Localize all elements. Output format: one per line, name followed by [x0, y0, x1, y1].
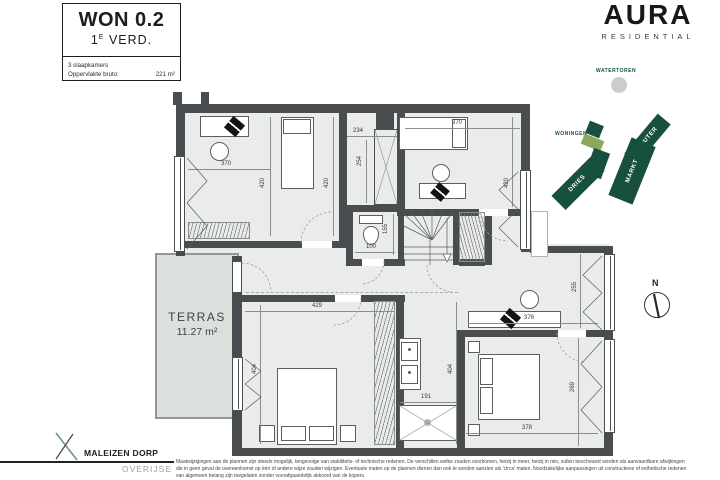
door-opening	[362, 259, 384, 266]
window-office-right	[604, 254, 615, 331]
dim-room2-width: 370	[452, 120, 462, 126]
pillow	[480, 387, 493, 414]
dim-line	[333, 117, 334, 236]
floor-plan: TERRAS 11.27 m²	[0, 0, 720, 480]
wall-segment	[346, 205, 405, 212]
dim-line	[405, 128, 520, 129]
sink	[401, 365, 418, 384]
dim-line	[580, 254, 581, 328]
dim-dressing-width: 234	[353, 128, 363, 134]
wardrobe-room1	[188, 222, 250, 239]
disclaimer-line: Maatwijzigingen aan de plannen zijn stee…	[176, 459, 712, 466]
dim-line	[355, 252, 395, 253]
dim-desk-width: 378	[524, 315, 534, 321]
roof-dash-line	[246, 292, 458, 293]
wall-segment	[398, 209, 404, 265]
disclaimer-line: die in geen geval de overeenkomst op één…	[176, 466, 712, 473]
dim-line	[400, 402, 456, 403]
floorplan-page: WON 0.2 1E VERD. 3 slaapkamers Oppervlak…	[0, 0, 720, 480]
footer-divider	[0, 461, 174, 463]
faucet-dot	[408, 348, 411, 351]
footer: MALEIZEN DORP OVERIJSE Maatwijzigingen a…	[0, 420, 720, 480]
wall-segment	[346, 205, 353, 265]
duct-block	[376, 113, 394, 129]
footer-logo-sub: OVERIJSE	[0, 464, 172, 474]
wall-segment	[457, 330, 613, 337]
stool	[432, 164, 450, 182]
wall-segment	[485, 209, 492, 265]
dim-line	[366, 140, 367, 203]
compass-needle	[654, 294, 659, 318]
shaft	[374, 129, 398, 205]
dim-master-height: 404	[252, 364, 258, 374]
dim-line	[188, 169, 270, 170]
faucet-dot	[408, 371, 411, 374]
window-bedroom3-right	[604, 339, 615, 433]
door-opening	[335, 295, 361, 302]
roof-outline	[531, 211, 548, 257]
dim-room1-height: 420	[260, 178, 266, 188]
dim-wc-width: 100	[366, 244, 376, 250]
window-master-left	[232, 357, 243, 411]
dim-line	[512, 117, 513, 207]
toilet-tank	[359, 215, 383, 224]
dim-wc-height: 155	[383, 224, 389, 234]
door-opening	[302, 241, 332, 248]
footer-logo-title: MALEIZEN DORP	[84, 448, 158, 458]
sink	[401, 342, 418, 361]
dim-room2-height: 420	[504, 178, 510, 188]
dim-bed3-height: 269	[570, 382, 576, 392]
door-opening	[233, 262, 241, 292]
window-room2-right	[520, 170, 531, 250]
terrace-area: 11.27 m²	[155, 326, 239, 338]
dim-room1-width: 370	[221, 161, 231, 167]
disclaimer-line: van algemeen belang zijn toegelaten zond…	[176, 473, 712, 480]
nightstand	[468, 341, 480, 353]
chimney-stub	[173, 92, 182, 105]
dim-line	[468, 323, 598, 324]
dim-shower-width: 191	[421, 394, 431, 400]
dim-line	[393, 214, 394, 255]
chimney-stub	[201, 92, 209, 105]
stool	[210, 142, 229, 161]
dim-line	[347, 136, 397, 137]
dim-shaft-height: 254	[357, 156, 363, 166]
terrace-name: TERRAS	[155, 310, 239, 324]
wall-segment	[176, 104, 530, 113]
dim-line	[245, 311, 394, 312]
closet-stairs	[459, 212, 485, 262]
dim-office-height: 255	[572, 282, 578, 292]
pillow	[283, 119, 311, 134]
pillow	[480, 358, 493, 385]
window-room1-left	[174, 156, 185, 252]
dim-master-width: 429	[312, 303, 322, 309]
dim-bath-height: 404	[448, 364, 454, 374]
footer-disclaimer: Maatwijzigingen aan de plannen zijn stee…	[176, 459, 712, 479]
stool	[520, 290, 539, 309]
door-opening	[558, 330, 586, 337]
dim-line	[270, 117, 271, 236]
dim-dressing-height: 420	[324, 178, 330, 188]
